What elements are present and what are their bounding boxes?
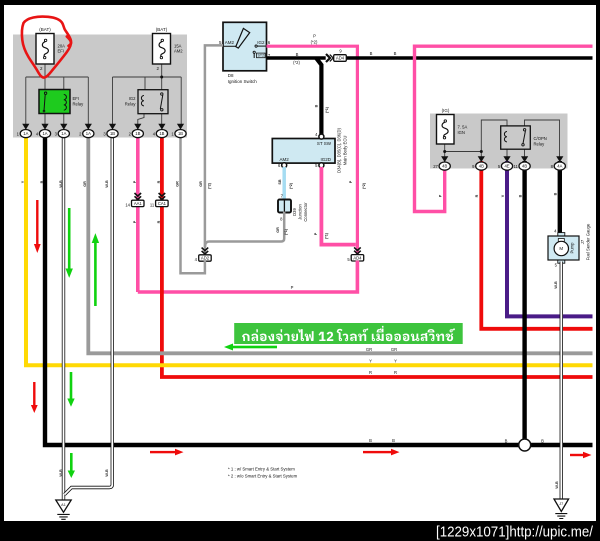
svg-text:R: R xyxy=(394,370,397,375)
svg-text:IG2: IG2 xyxy=(257,40,265,45)
svg-text:Y: Y xyxy=(394,359,397,364)
svg-text:* 2 : w/o Smart Entry & Start: * 2 : w/o Smart Entry & Start System xyxy=(228,474,298,479)
svg-text:EFI: EFI xyxy=(58,49,65,54)
svg-text:4E: 4E xyxy=(504,164,509,169)
svg-text:GR: GR xyxy=(83,181,87,187)
svg-text:B: B xyxy=(394,51,397,56)
svg-text:GR: GR xyxy=(199,181,203,187)
svg-text:P: P xyxy=(291,285,294,290)
svg-text:B: B xyxy=(541,438,544,443)
svg-text:B: B xyxy=(315,104,319,107)
svg-text:1A: 1A xyxy=(42,131,47,136)
svg-text:Relay: Relay xyxy=(534,142,546,147)
svg-text:4B: 4B xyxy=(522,164,527,169)
svg-text:GR: GR xyxy=(391,347,397,352)
svg-text:* 1 : w/ Smart Entry & Start S: * 1 : w/ Smart Entry & Start System xyxy=(228,466,295,471)
svg-text:Connector: Connector xyxy=(303,202,308,222)
svg-text:AD4: AD4 xyxy=(353,255,362,260)
svg-text:B: B xyxy=(369,438,372,443)
svg-text:Pump: Pump xyxy=(570,242,575,254)
svg-text:AD4: AD4 xyxy=(336,56,345,61)
svg-text:R: R xyxy=(369,370,372,375)
svg-text:(*2): (*2) xyxy=(289,182,293,189)
svg-text:Junction: Junction xyxy=(298,204,303,220)
svg-text:11: 11 xyxy=(513,164,518,169)
svg-text:7. 5A: 7. 5A xyxy=(458,125,468,130)
svg-text:W-B: W-B xyxy=(105,469,109,477)
svg-text:W-B: W-B xyxy=(59,469,63,477)
svg-text:CA1: CA1 xyxy=(158,201,167,206)
svg-text:IG2: IG2 xyxy=(129,96,136,101)
svg-text:AM2: AM2 xyxy=(280,157,290,162)
svg-text:27: 27 xyxy=(433,164,438,169)
svg-text:Main Body ECU: Main Body ECU xyxy=(343,136,348,166)
svg-text:AD2: AD2 xyxy=(201,256,210,261)
svg-text:(*1): (*1) xyxy=(325,106,329,113)
svg-text:B: B xyxy=(370,51,373,56)
svg-text:J7: J7 xyxy=(559,502,563,506)
svg-text:(*2): (*2) xyxy=(362,182,366,189)
svg-text:(IG): (IG) xyxy=(442,108,450,113)
svg-text:GR: GR xyxy=(276,227,280,233)
svg-text:AA1: AA1 xyxy=(134,201,143,206)
svg-text:(*1): (*1) xyxy=(325,232,329,239)
svg-text:GR: GR xyxy=(176,181,180,187)
svg-text:(*2): (*2) xyxy=(311,40,318,45)
svg-text:R: R xyxy=(157,220,161,223)
svg-text:4B: 4B xyxy=(479,164,484,169)
svg-text:11: 11 xyxy=(150,203,155,208)
svg-text:1A: 1A xyxy=(23,131,28,136)
svg-text:4A: 4A xyxy=(557,164,562,169)
svg-text:Relay: Relay xyxy=(125,102,137,107)
svg-text:4B: 4B xyxy=(442,164,447,169)
svg-text:M: M xyxy=(559,246,563,251)
svg-text:D34(B), D35(C), D36(D): D34(B), D35(C), D36(D) xyxy=(337,127,342,173)
svg-text:R: R xyxy=(157,180,161,183)
svg-text:SB: SB xyxy=(278,179,282,184)
svg-text:1B: 1B xyxy=(135,131,140,136)
svg-text:[1229x1071]http://upic.me/: [1229x1071]http://upic.me/ xyxy=(436,524,594,541)
svg-text:D8: D8 xyxy=(228,73,234,78)
svg-text:Y: Y xyxy=(369,359,372,364)
svg-text:1A: 1A xyxy=(61,131,66,136)
svg-text:A1: A1 xyxy=(61,503,66,507)
svg-text:B: B xyxy=(518,194,522,197)
svg-text:(*2): (*2) xyxy=(208,182,212,189)
svg-text:GR: GR xyxy=(366,347,372,352)
svg-text:IGN: IGN xyxy=(458,130,465,135)
svg-text:Relay: Relay xyxy=(73,102,85,107)
svg-text:C/OPN: C/OPN xyxy=(534,136,547,141)
svg-text:ST SW: ST SW xyxy=(317,141,332,146)
svg-text:W-B: W-B xyxy=(105,180,109,188)
svg-text:IG2D: IG2D xyxy=(320,157,331,162)
svg-text:1A: 1A xyxy=(86,131,91,136)
svg-text:P: P xyxy=(313,34,316,39)
svg-text:AM2: AM2 xyxy=(174,49,183,54)
svg-text:B: B xyxy=(296,52,299,57)
svg-text:B: B xyxy=(554,192,558,195)
svg-text:1B: 1B xyxy=(178,131,183,136)
svg-text:Fuel Sender Gauge: Fuel Sender Gauge xyxy=(586,223,591,260)
svg-text:(*1): (*1) xyxy=(284,228,288,235)
svg-text:EFI: EFI xyxy=(73,96,80,101)
svg-text:B: B xyxy=(392,438,395,443)
svg-text:(*2): (*2) xyxy=(293,60,300,65)
svg-text:1B: 1B xyxy=(110,131,115,136)
svg-text:J7: J7 xyxy=(580,239,585,244)
svg-text:1B: 1B xyxy=(159,131,164,136)
svg-text:R: R xyxy=(475,194,479,197)
svg-text:B: B xyxy=(40,180,44,183)
svg-text:B: B xyxy=(505,438,508,443)
svg-text:14: 14 xyxy=(125,203,130,208)
svg-text:W-B: W-B xyxy=(554,281,558,289)
svg-text:W-B: W-B xyxy=(59,180,63,188)
svg-text:ST2: ST2 xyxy=(258,54,265,58)
svg-text:W-B: W-B xyxy=(555,481,559,489)
svg-text:(BAT): (BAT) xyxy=(39,27,51,32)
svg-text:(BAT): (BAT) xyxy=(156,27,168,32)
svg-text:AM2: AM2 xyxy=(225,40,235,45)
svg-text:Ignition Switch: Ignition Switch xyxy=(228,79,258,84)
svg-text:D39: D39 xyxy=(292,207,297,215)
